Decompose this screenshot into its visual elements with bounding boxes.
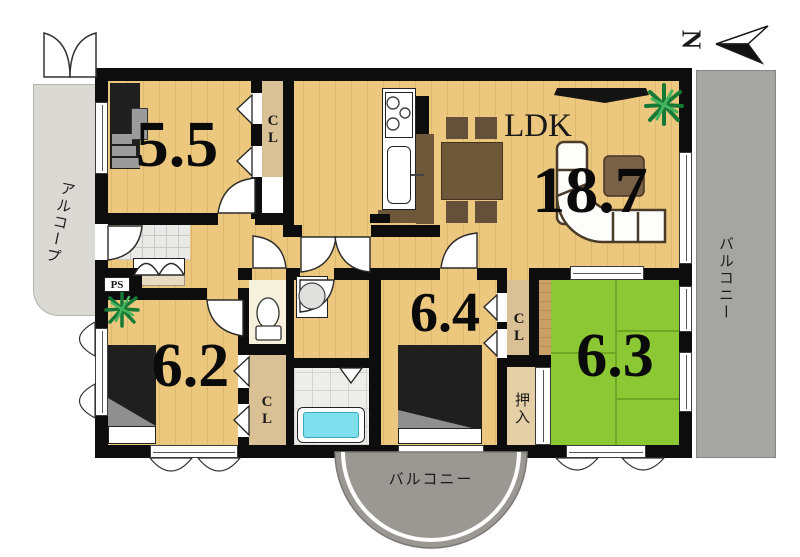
wall-col-wash-left — [286, 268, 294, 445]
wall-wash-top-c — [334, 268, 369, 280]
entrance-double-door — [44, 33, 96, 77]
window-64-bottom — [398, 445, 484, 458]
entrance-tile-floor — [118, 225, 190, 260]
wall-top — [95, 68, 692, 81]
dining-chair — [475, 201, 497, 223]
dining-chair — [475, 117, 497, 139]
floor-plan: 5.5 LDK 18.7 6.2 6.4 6.3 CL CL CL 押入 PS … — [0, 0, 800, 557]
opening-62-b — [238, 404, 249, 437]
room-size-6-3: 6.3 — [560, 325, 670, 387]
balcony-bottom-label: バルコニー — [381, 468, 481, 489]
washbasin-cabinet — [296, 276, 328, 318]
room-size-18-7: 18.7 — [515, 158, 665, 224]
wall-oshiire-top — [507, 355, 551, 367]
wall-wash-top-a — [238, 268, 252, 280]
balcony-right-label: バルコニー — [716, 216, 736, 341]
closet-5-5-lower — [262, 177, 283, 213]
window-62-bottom — [150, 445, 238, 458]
opening-64-b — [497, 329, 507, 358]
wall-hall-ldk-a — [294, 225, 302, 237]
ldk-label: LDK — [498, 108, 578, 145]
room-size-6-2: 6.2 — [138, 335, 243, 397]
dining-chair — [446, 201, 468, 223]
closet-6-4-label: CL — [509, 303, 527, 353]
wall-55-bottom-a — [108, 213, 218, 225]
opening-front-door — [95, 224, 108, 260]
room-size-5-5: 5.5 — [122, 112, 232, 178]
oshiire-sliding-door — [535, 367, 551, 445]
bathtub-water — [303, 412, 359, 438]
wall-55-bottom-b — [255, 213, 294, 225]
oshiire-label: 押入 — [510, 380, 532, 438]
compass-north-label: N — [676, 25, 707, 55]
wall-hall-ldk-b — [371, 225, 440, 237]
kitchen-wall-stub — [416, 96, 429, 134]
wall-toilet-cl — [249, 344, 286, 355]
window-ldk-right — [679, 152, 692, 264]
wall-63-top-b — [644, 268, 679, 280]
pipe-space-label: PS — [104, 277, 130, 292]
wall-wash-bath — [294, 358, 369, 368]
dining-chair — [446, 117, 468, 139]
window-63-top — [570, 266, 644, 280]
wall-63-top-a — [529, 268, 570, 280]
wall-cl64-right — [529, 280, 539, 365]
wall-64-top-a — [381, 268, 440, 280]
window-63-bottom — [566, 445, 646, 458]
window-62-left — [95, 328, 108, 416]
window-63-right-a — [679, 286, 692, 332]
window-55-left — [95, 102, 108, 174]
wall-wash-64 — [369, 268, 381, 445]
stove — [385, 92, 413, 138]
closet-6-2-label: CL — [257, 386, 275, 436]
bed-6-4-foot — [398, 428, 482, 444]
tatami-line — [615, 398, 679, 400]
kitchen-wall-stub-b — [370, 214, 390, 223]
balcony-right-area — [696, 70, 776, 458]
dining-table — [441, 142, 503, 200]
opening-55-a — [251, 93, 262, 124]
opening-64-a — [497, 293, 507, 322]
bed-6-4 — [398, 345, 482, 429]
balcony-bottom-shape — [335, 452, 527, 548]
opening-55-b — [251, 146, 262, 177]
toilet-floor — [249, 280, 286, 344]
room-size-6-4: 6.4 — [395, 285, 495, 341]
tatami-edge-board — [539, 280, 551, 365]
bed-6-2-foot — [108, 426, 156, 444]
closet-5-5-label: CL — [263, 106, 281, 154]
kitchen-sink — [387, 146, 411, 204]
compass-arrow — [716, 26, 768, 63]
window-63-right-b — [679, 352, 692, 412]
